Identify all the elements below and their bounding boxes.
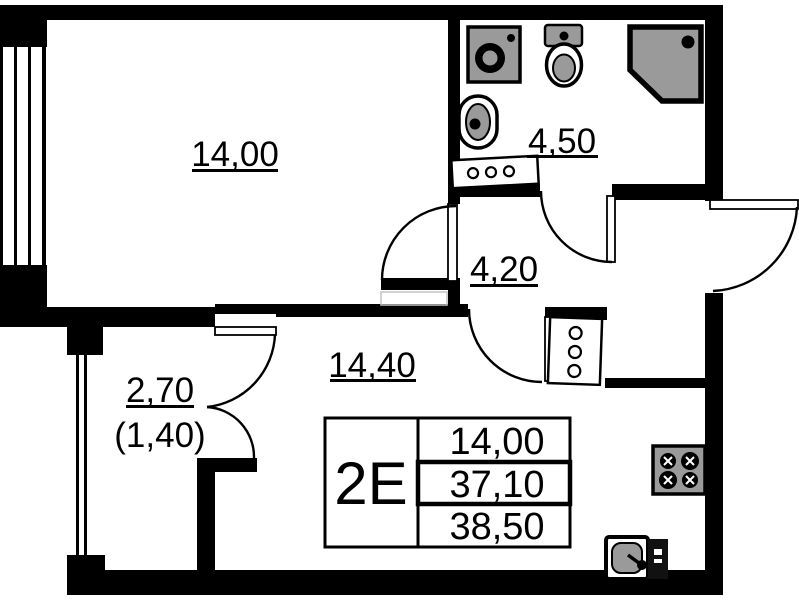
- wall-balcony-right: [197, 458, 215, 572]
- bath-cabinet-icon: [451, 156, 538, 188]
- shower-icon: [630, 27, 701, 101]
- balcony-area-label: 2,70: [126, 371, 194, 410]
- bathroom-door-arc: [541, 191, 612, 262]
- wall-mid-horizontal: [276, 304, 468, 317]
- balcony-door-arc-upper: [207, 334, 275, 407]
- legend-row3-value: 38,50: [449, 506, 544, 548]
- wall-shaft-stub: [448, 289, 460, 308]
- window-bedroom-left-icon: [0, 44, 46, 268]
- wall-balcony-door-lintel: [215, 304, 276, 314]
- bathroom-fixtures: [451, 25, 701, 188]
- bathroom-door-leaf: [607, 196, 615, 262]
- bedroom-door-arc: [382, 206, 456, 280]
- kitchen-sink-icon: [606, 537, 668, 579]
- balcony-door-leaf: [215, 327, 276, 335]
- window-balcony-left-icon: [76, 353, 87, 557]
- hallway-area-underline: [470, 284, 538, 287]
- living-door-arc: [469, 309, 542, 382]
- balcony-area-reduced-label: (1,40): [114, 416, 205, 455]
- balcony-area-underline: [126, 405, 194, 408]
- hallway-area-label: 4,20: [470, 250, 538, 289]
- wall-top: [0, 5, 723, 20]
- vent-shaft: [381, 292, 447, 305]
- wall-balcony-pier: [67, 327, 103, 355]
- wall-balcony-right-top: [197, 458, 257, 472]
- hall-cabinet-icon: [548, 317, 602, 385]
- entrance-door-arc: [713, 207, 797, 291]
- legend-row1-value: 14,00: [449, 421, 544, 463]
- bedroom-door-leaf: [448, 204, 457, 281]
- bedroom-area-underline: [192, 169, 278, 172]
- wall-bedroom-bottom: [0, 307, 215, 327]
- toilet-icon: [545, 25, 582, 86]
- stove-icon: [653, 446, 705, 494]
- legend-row2-value: 37,10: [449, 464, 544, 506]
- balcony-door-arc-lower: [207, 407, 254, 458]
- entrance-door-leaf: [710, 200, 798, 209]
- legend-unit-type: 2E: [334, 450, 407, 517]
- wall-right-top: [705, 5, 723, 201]
- washing-machine-icon: [468, 27, 520, 82]
- wall-balcony-bottom-block: [67, 555, 105, 595]
- wall-right-bottom: [705, 293, 723, 595]
- bathroom-area-underline: [527, 155, 598, 158]
- bedroom-area-label: 14,00: [191, 135, 279, 174]
- legend-table: 2E 14,00 37,10 38,50: [325, 418, 570, 548]
- wall-hall-living-right: [605, 378, 723, 388]
- wall-top-left-block: [0, 5, 47, 47]
- floor-plan-page: 14,00 4,50 4,20 14,40 2,70 (1,40) 2E 14,…: [0, 0, 799, 600]
- floor-plan-drawing: 14,00 4,50 4,20 14,40 2,70 (1,40) 2E 14,…: [0, 0, 799, 600]
- wall-bath-bottom-right: [612, 184, 710, 200]
- bath-sink-icon: [459, 96, 497, 148]
- living-area-underline: [330, 379, 416, 382]
